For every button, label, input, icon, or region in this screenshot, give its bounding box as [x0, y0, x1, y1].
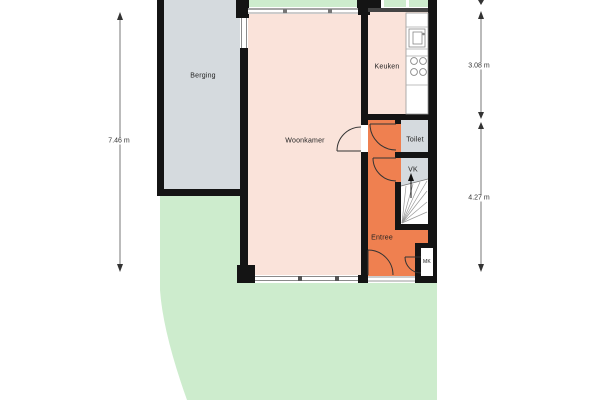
room-label-vk: VK [408, 167, 418, 174]
berging-room [164, 0, 240, 189]
room-label-entree: Entree [371, 235, 393, 242]
room-label-berging: Berging [190, 73, 216, 80]
keuken-top-wall [368, 8, 428, 12]
dimension-label-right-top: 3.08 m [467, 63, 490, 70]
dimension-label-left: 7.46 m [107, 138, 130, 145]
room-label-keuken: Keuken [375, 64, 400, 71]
floorplan-drawing [0, 0, 600, 400]
room-label-toilet: Toilet [406, 137, 424, 144]
room-label-mk: MK [423, 259, 431, 265]
room-label-woonkamer: Woonkamer [285, 138, 324, 145]
dimension-line-right-top [478, 0, 484, 119]
floorplan-canvas: Berging Woonkamer Keuken Toilet VK Entre… [0, 0, 600, 400]
kitchen-counter [406, 13, 428, 114]
sink-icon [409, 29, 425, 47]
dimension-label-right-bottom: 4.27 m [467, 195, 490, 202]
